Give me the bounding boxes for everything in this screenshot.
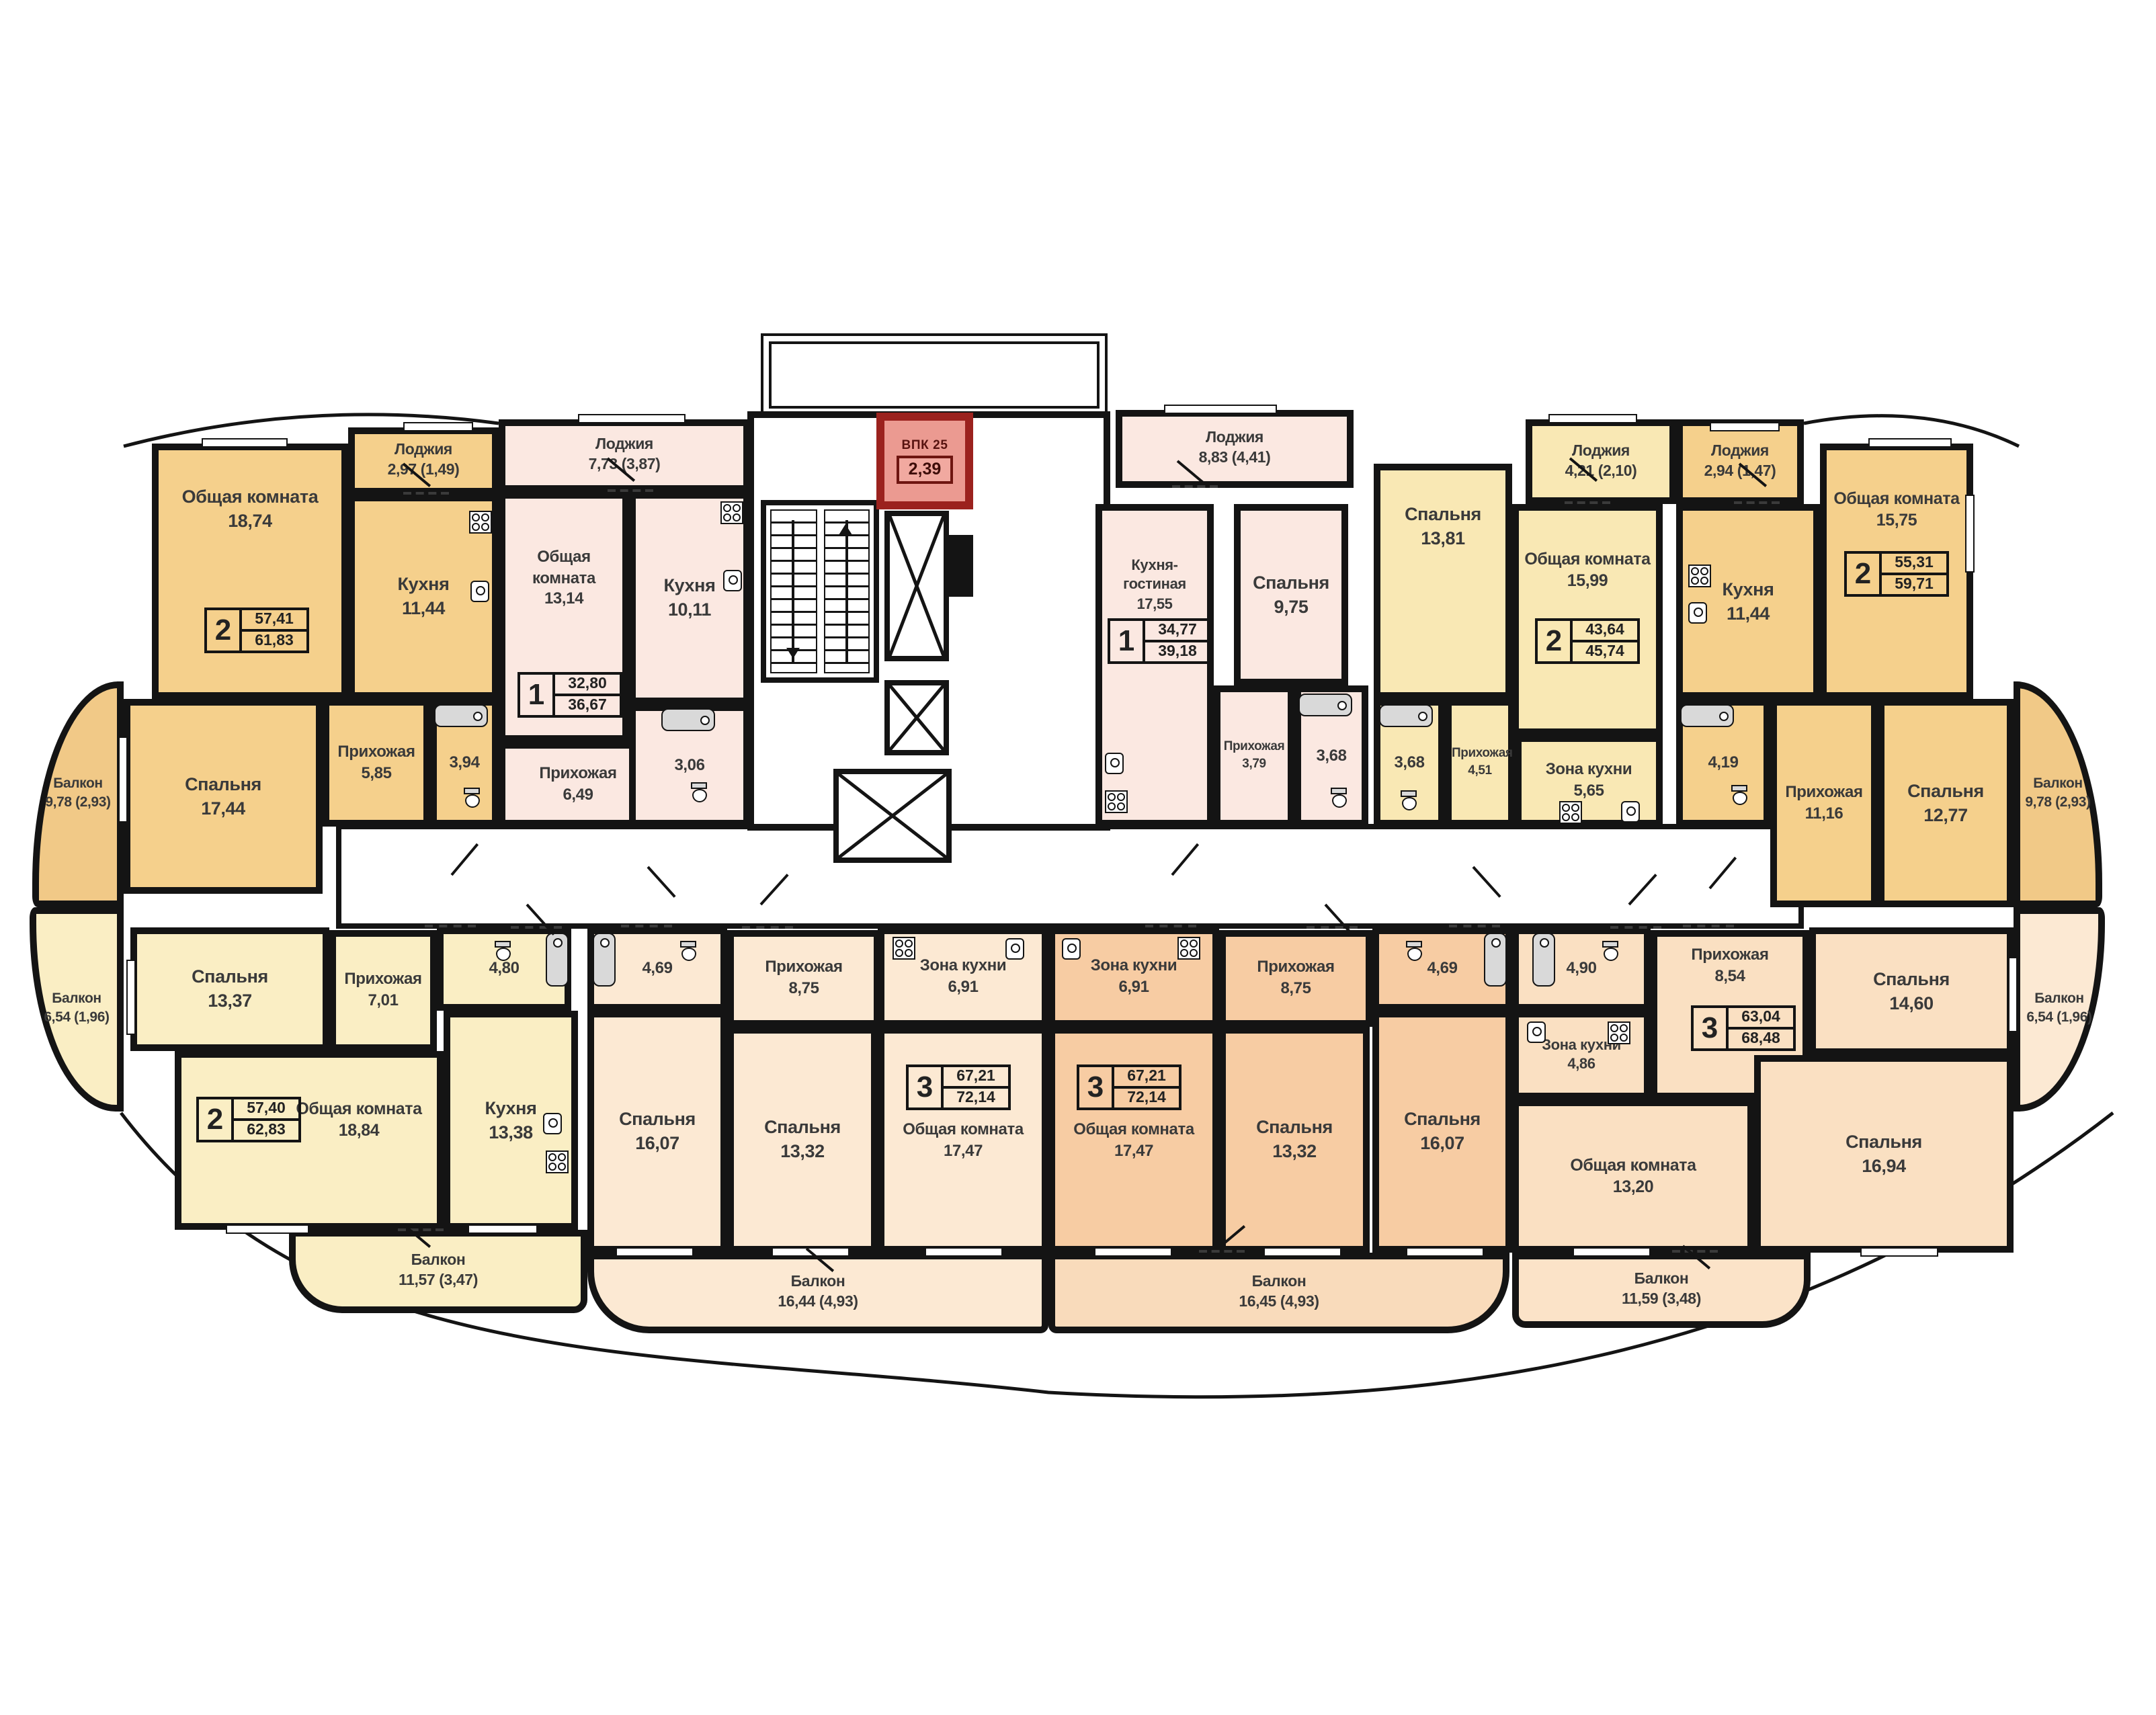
room-label: Спальня (1816, 968, 2007, 991)
room-text: Спальня9,75 (1241, 571, 1341, 618)
room-label: Общая комната (1827, 488, 1966, 510)
stove-icon (893, 937, 915, 960)
room-area-value: 2,97 (1,49) (355, 461, 492, 481)
room-text: 3,68 (1380, 752, 1438, 773)
apartment-total-area: 62,83 (234, 1121, 298, 1140)
room-label: Прихожая (1226, 958, 1366, 978)
room-area-value: 15,99 (1519, 571, 1656, 593)
room-text: Лоджия8,83 (4,41) (1122, 429, 1347, 469)
room-area-value: 13,81 (1380, 526, 1505, 550)
room-text: Общая комната15,99 (1519, 548, 1656, 592)
room-label: Спальня (1241, 571, 1341, 595)
room-apt-g-bedroom-1: Спальня16,07 (587, 1011, 727, 1253)
room-text: Балкон6,54 (1,96) (2020, 991, 2098, 1028)
door-threshold (1610, 926, 1661, 929)
wall-stub (949, 535, 973, 597)
apartment-living-area: 57,40 (234, 1099, 298, 1121)
room-label: Балкон (2020, 991, 2098, 1009)
room-label: Лоджия (355, 441, 492, 461)
room-label: Спальня (1761, 1130, 2007, 1154)
room-apt-i-common-room: Общая комната13,20 (1512, 1099, 1754, 1253)
apartment-living-area: 57,41 (242, 610, 306, 632)
apartment-total-area: 72,14 (944, 1089, 1008, 1107)
toilet-bowl (1331, 794, 1346, 808)
bathtub-icon (1379, 704, 1433, 727)
apartment-rooms-count: 3 (909, 1067, 944, 1107)
room-text: Спальня12,77 (1884, 780, 2007, 827)
room-label: Балкон (36, 991, 117, 1009)
room-area-value: 16,07 (1379, 1132, 1505, 1155)
apartment-rooms-count: 2 (1847, 554, 1882, 594)
room-apt-e-bedroom: Спальня12,77 (1878, 699, 2014, 907)
room-label: Спальня (137, 966, 323, 989)
bathtub-icon (1532, 933, 1555, 987)
vpk-title: ВПК 25 (902, 438, 948, 453)
bathtub-icon (546, 933, 569, 987)
apartment-badge-c: 134,7739,18 (1108, 618, 1212, 664)
room-apt-e-kitchen: Кухня11,44 (1676, 504, 1820, 699)
apartment-rooms-count: 2 (207, 610, 242, 651)
room-area-value: 3,79 (1220, 756, 1288, 773)
room-text: Спальня16,94 (1761, 1130, 2007, 1177)
toilet-icon (464, 788, 480, 808)
room-area-value: 18,84 (281, 1120, 437, 1142)
apartment-areas: 63,0468,48 (1729, 1008, 1793, 1048)
room-label: Спальня (1226, 1116, 1363, 1140)
apartment-total-area: 36,67 (555, 696, 620, 715)
room-apt-h-common-room: Общая комната17,47 (1048, 1027, 1219, 1253)
apartment-badge-g: 367,2172,14 (906, 1064, 1011, 1110)
room-text: Спальня13,37 (137, 966, 323, 1013)
door-threshold (398, 1228, 444, 1231)
bathtub-icon (1298, 694, 1352, 716)
room-text: Балкон11,59 (3,48) (1519, 1270, 1804, 1310)
sink-icon (1621, 801, 1640, 823)
apartment-badge-a: 257,4161,83 (204, 608, 309, 653)
room-text: Общая комната13,14 (505, 547, 622, 610)
room-area-value: 4,19 (1683, 752, 1764, 773)
door-threshold (1565, 501, 1610, 504)
window (226, 1224, 309, 1234)
room-label: Лоджия (1122, 429, 1347, 449)
apartment-rooms-count: 2 (1538, 621, 1573, 661)
apartment-areas: 34,7739,18 (1145, 621, 1210, 661)
room-apt-f-hall: Прихожая7,01 (329, 930, 437, 1051)
room-apt-f-balcony: Балкон11,57 (3,47) (289, 1230, 587, 1313)
toilet-bowl (681, 948, 696, 961)
stove-icon (1105, 790, 1128, 813)
room-text: Кухня-гостиная17,55 (1102, 556, 1207, 614)
room-area-value: 3,68 (1301, 745, 1362, 766)
apartment-rooms-count: 3 (1694, 1008, 1729, 1048)
room-area-value: 4,86 (1519, 1055, 1644, 1075)
room-area-value: 17,44 (130, 796, 316, 820)
sink-icon (1688, 602, 1707, 624)
stairs (761, 500, 879, 683)
stove-icon (720, 501, 743, 524)
door-threshold (1199, 1250, 1245, 1253)
room-apt-d-loggia: Лоджия4,21 (2,10) (1526, 419, 1676, 504)
window (1860, 1247, 1938, 1257)
sink-icon (1005, 938, 1024, 960)
apartment-total-area: 45,74 (1573, 642, 1637, 661)
room-text: Зона кухни5,65 (1522, 760, 1656, 802)
toilet-tank (691, 782, 707, 789)
room-text: Лоджия4,21 (2,10) (1532, 442, 1669, 482)
room-area-value: 16,44 (4,93) (594, 1293, 1042, 1313)
window (1406, 1247, 1484, 1257)
apartment-badge-h: 367,2172,14 (1077, 1064, 1181, 1110)
toilet-tank (1602, 941, 1618, 948)
bathtub-icon (1680, 704, 1734, 727)
room-text: Спальня17,44 (130, 773, 316, 820)
window (578, 414, 686, 423)
room-apt-c-kitchen-living: Кухня-гостиная17,55 (1095, 504, 1214, 827)
room-area-value: 3,68 (1380, 752, 1438, 773)
room-text: Прихожая8,75 (734, 958, 874, 999)
toilet-tank (1406, 941, 1422, 948)
room-area-value: 13,14 (505, 589, 622, 610)
arrow-up-icon (845, 520, 848, 663)
room-text: Общая комната17,47 (1055, 1120, 1212, 1161)
room-label: Прихожая (1452, 746, 1508, 763)
toilet-tank (680, 941, 696, 948)
stove-icon (469, 511, 492, 534)
room-text: 3,68 (1301, 745, 1362, 766)
toilet-tank (1331, 788, 1347, 794)
room-label: Общая комната (505, 547, 622, 589)
window (1573, 1247, 1651, 1257)
toilet-bowl (495, 948, 510, 961)
door-threshold (403, 492, 449, 495)
toilet-icon (1731, 785, 1747, 805)
room-apt-f-bedroom: Спальня13,37 (130, 927, 329, 1051)
room-area-value: 9,75 (1241, 595, 1341, 618)
stove-icon (1177, 937, 1200, 960)
room-apt-d-hall: Прихожая4,51 (1445, 699, 1515, 827)
apartment-total-area: 39,18 (1145, 642, 1210, 661)
toilet-tank (1401, 790, 1417, 797)
room-apt-i-balcony: Балкон11,59 (3,48) (1512, 1253, 1811, 1328)
room-apt-c-loggia: Лоджия8,83 (4,41) (1116, 410, 1354, 488)
room-label: Прихожая (1220, 739, 1288, 756)
room-apt-d-kitchen-zone: Зона кухни5,65 (1515, 735, 1663, 827)
room-apt-i-bedroom-2: Спальня16,94 (1754, 1055, 2014, 1253)
room-area-value: 8,75 (734, 978, 874, 999)
room-area-value: 3,06 (636, 755, 743, 776)
room-apt-i-bedroom-1: Спальня14,60 (1809, 927, 2014, 1055)
room-text: Зона кухни6,91 (884, 956, 1042, 998)
toilet-bowl (692, 789, 706, 802)
room-apt-a-common-room: Общая комната18,74 (152, 444, 348, 699)
room-area-value: 15,75 (1827, 510, 1966, 532)
room-area-value: 13,20 (1519, 1176, 1747, 1198)
door-threshold (742, 926, 793, 929)
room-text: Спальня16,07 (594, 1108, 720, 1155)
room-text: Балкон9,78 (2,93) (39, 776, 117, 813)
apartment-rooms-count: 3 (1079, 1067, 1114, 1107)
elevator-1 (884, 511, 949, 661)
toilet-icon (680, 941, 696, 961)
window (1548, 414, 1637, 423)
apartment-areas: 57,4062,83 (234, 1099, 298, 1140)
apartment-badge-e: 255,3159,71 (1844, 551, 1949, 597)
stair-flight-up (823, 509, 870, 673)
apartment-living-area: 67,21 (944, 1067, 1008, 1089)
room-text: 4,19 (1683, 752, 1764, 773)
apartment-living-area: 43,64 (1573, 621, 1637, 642)
window (1263, 1247, 1341, 1257)
room-label: Балкон (39, 776, 117, 794)
door-threshold (1683, 925, 1734, 927)
apartment-rooms-count: 1 (520, 675, 555, 715)
window (925, 1247, 1003, 1257)
apartment-living-area: 34,77 (1145, 621, 1210, 642)
room-area-value: 6,54 (1,96) (36, 1009, 117, 1028)
room-text: Балкон6,54 (1,96) (36, 991, 117, 1028)
window (1965, 495, 1975, 573)
room-area-value: 13,32 (734, 1140, 871, 1163)
room-label: Прихожая (1777, 782, 1871, 803)
room-text: Прихожая5,85 (329, 742, 423, 784)
room-apt-a-hall: Прихожая5,85 (323, 699, 430, 827)
room-apt-g-hall: Прихожая8,75 (727, 930, 880, 1027)
room-area-value: 13,37 (137, 989, 323, 1013)
bathtub-icon (593, 933, 616, 987)
room-text: Прихожая11,16 (1777, 782, 1871, 824)
room-area-value: 6,54 (1,96) (2020, 1009, 2098, 1028)
window (468, 1224, 538, 1234)
stove-icon (546, 1151, 569, 1173)
room-label: Прихожая (734, 958, 874, 978)
room-text: Общая комната15,75 (1827, 488, 1966, 532)
room-label: Общая комната (884, 1120, 1042, 1140)
room-area-value: 3,94 (437, 752, 492, 773)
sink-icon (470, 581, 489, 602)
room-area-value: 17,55 (1102, 595, 1207, 614)
door-threshold (1672, 1250, 1718, 1253)
room-text: Общая комната17,47 (884, 1120, 1042, 1161)
room-apt-h-balcony: Балкон16,45 (4,93) (1048, 1253, 1509, 1333)
room-text: Общая комната18,74 (159, 485, 341, 532)
apartment-rooms-count: 1 (1110, 621, 1145, 661)
bathtub-icon (1484, 933, 1507, 987)
toilet-icon (1331, 788, 1347, 808)
room-label: Спальня (1884, 780, 2007, 803)
room-apt-c-hall: Прихожая3,79 (1214, 685, 1294, 827)
room-label: Балкон (1055, 1273, 1503, 1293)
room-apt-a-bedroom: Спальня17,44 (124, 699, 323, 894)
sink-icon (543, 1113, 562, 1134)
plan-canvas: Балкон9,78 (2,93)Балкон6,54 (1,96)Балкон… (0, 0, 2156, 1715)
stove-icon (1559, 801, 1582, 824)
room-text: Прихожая8,54 (1657, 945, 1802, 987)
room-label: Прихожая (1657, 945, 1802, 966)
room-text: Балкон16,44 (4,93) (594, 1273, 1042, 1313)
room-area-value: 13,32 (1226, 1140, 1363, 1163)
room-label: Лоджия (505, 435, 743, 456)
room-text: 3,94 (437, 752, 492, 773)
toilet-tank (495, 941, 511, 948)
window (2008, 957, 2018, 1032)
room-area-value: 6,91 (884, 977, 1042, 998)
door-threshold (621, 925, 672, 927)
room-text: Зона кухни6,91 (1055, 956, 1212, 998)
vpk-area-value: 2,39 (897, 456, 954, 484)
window (126, 960, 136, 1035)
sink-icon (723, 570, 742, 591)
apartment-areas: 55,3159,71 (1882, 554, 1946, 594)
room-area-value: 5,65 (1522, 781, 1656, 802)
room-area-value: 10,11 (636, 598, 743, 622)
room-area-value: 11,59 (3,48) (1519, 1290, 1804, 1310)
room-text: Прихожая8,75 (1226, 958, 1366, 999)
stove-icon (1688, 564, 1711, 587)
room-label: Зона кухни (1522, 760, 1656, 781)
room-apt-a-loggia: Лоджия2,97 (1,49) (348, 427, 499, 495)
room-text: Спальня13,81 (1380, 503, 1505, 550)
elevator-2 (884, 680, 949, 755)
room-apt-c-bedroom: Спальня9,75 (1234, 504, 1348, 685)
apartment-total-area: 72,14 (1114, 1089, 1179, 1107)
room-label: Прихожая (336, 970, 430, 991)
room-apt-g-bedroom-2: Спальня13,32 (727, 1027, 878, 1253)
room-label: Спальня (594, 1108, 720, 1132)
room-apt-e-loggia: Лоджия2,94 (1,47) (1676, 419, 1804, 504)
corridor (336, 824, 1804, 929)
room-area-value: 8,83 (4,41) (1122, 449, 1347, 469)
room-label: Лоджия (1532, 442, 1669, 462)
room-area-value: 6,91 (1055, 977, 1212, 998)
room-label: Спальня (1379, 1108, 1505, 1132)
room-text: Лоджия7,73 (3,87) (505, 435, 743, 476)
room-label: Балкон (1519, 1270, 1804, 1290)
toilet-bowl (1401, 797, 1416, 810)
room-apt-h-bedroom-1: Спальня16,07 (1372, 1011, 1512, 1253)
door-threshold (1734, 501, 1780, 504)
window (1868, 438, 1952, 448)
apartment-badge-i: 363,0468,48 (1691, 1005, 1796, 1051)
room-text: Лоджия2,94 (1,47) (1683, 442, 1797, 482)
vpk-panel: ВПК 25 2,39 (884, 421, 965, 501)
toilet-icon (1602, 941, 1618, 961)
apartment-areas: 57,4161,83 (242, 610, 306, 651)
apartment-areas: 67,2172,14 (944, 1067, 1008, 1107)
toilet-bowl (464, 794, 479, 808)
door-threshold (1172, 485, 1218, 488)
room-area-value: 16,94 (1761, 1154, 2007, 1177)
door-threshold (1307, 926, 1358, 929)
room-label: Общая комната (1519, 548, 1656, 571)
room-area-value: 17,47 (1055, 1140, 1212, 1161)
window (403, 422, 473, 431)
room-area-value: 7,01 (336, 991, 430, 1011)
room-text: Балкон9,78 (2,93) (2020, 776, 2096, 813)
window (1094, 1247, 1172, 1257)
apartment-areas: 67,2172,14 (1114, 1067, 1179, 1107)
toilet-tank (464, 788, 480, 794)
room-label: Балкон (296, 1251, 581, 1271)
room-label: Общая комната (1055, 1120, 1212, 1140)
room-label: Общая комната (159, 485, 341, 509)
sink-icon (1105, 753, 1124, 774)
room-apt-g-balcony: Балкон16,44 (4,93) (587, 1253, 1048, 1333)
room-label: Балкон (2020, 776, 2096, 794)
apartment-total-area: 68,48 (1729, 1030, 1793, 1048)
apartment-total-area: 61,83 (242, 632, 306, 651)
room-text: Спальня16,07 (1379, 1108, 1505, 1155)
apartment-living-area: 55,31 (1882, 554, 1946, 575)
room-label: Кухня-гостиная (1102, 556, 1207, 595)
room-area-value: 11,16 (1777, 803, 1871, 824)
door-threshold (608, 489, 653, 492)
elevator-3 (833, 769, 952, 863)
vpk-highlighted-unit: ВПК 25 2,39 (876, 413, 973, 509)
room-label: Общая комната (1519, 1155, 1747, 1177)
room-text: Спальня14,60 (1816, 968, 2007, 1015)
room-area-value: 11,57 (3,47) (296, 1271, 581, 1292)
door-threshold (1449, 925, 1500, 927)
arrow-down-icon (792, 520, 795, 663)
room-text: Спальня13,32 (734, 1116, 871, 1163)
apartment-living-area: 32,80 (555, 675, 620, 696)
sink-icon (1527, 1021, 1546, 1043)
room-area-value: 16,45 (4,93) (1055, 1293, 1503, 1313)
room-text: Балкон11,57 (3,47) (296, 1251, 581, 1292)
toilet-icon (1406, 941, 1422, 961)
apartment-badge-b: 132,8036,67 (517, 672, 622, 718)
room-apt-h-hall: Прихожая8,75 (1219, 930, 1372, 1027)
room-area-value: 4,21 (2,10) (1532, 462, 1669, 482)
room-text: Прихожая3,79 (1220, 739, 1288, 772)
room-label: Общая комната (281, 1098, 437, 1120)
room-label: Спальня (130, 773, 316, 796)
room-apt-d-bedroom: Спальня13,81 (1374, 464, 1512, 699)
room-label: Лоджия (1683, 442, 1797, 462)
room-area-value: 5,85 (329, 763, 423, 784)
bathtub-icon (434, 704, 488, 727)
stair-flight-down (770, 509, 817, 673)
window (1710, 422, 1780, 431)
toilet-icon (691, 782, 707, 802)
room-area-value: 8,75 (1226, 978, 1366, 999)
toilet-icon (495, 941, 511, 961)
room-label: Спальня (1380, 503, 1505, 526)
apartment-total-area: 59,71 (1882, 575, 1946, 594)
room-apt-b-loggia: Лоджия7,73 (3,87) (499, 419, 750, 492)
window (202, 438, 288, 448)
room-text: Прихожая4,51 (1452, 746, 1508, 779)
apartment-badge-d: 243,6445,74 (1535, 618, 1640, 664)
toilet-bowl (1603, 948, 1618, 961)
room-text: Спальня13,32 (1226, 1116, 1363, 1163)
door-threshold (425, 925, 476, 927)
window (616, 1247, 694, 1257)
floor-plan-page: Балкон9,78 (2,93)Балкон6,54 (1,96)Балкон… (0, 0, 2156, 857)
window (1164, 405, 1277, 414)
apartment-living-area: 63,04 (1729, 1008, 1793, 1030)
door-threshold (511, 926, 562, 929)
door-threshold (1145, 925, 1196, 927)
room-label: Прихожая (329, 742, 423, 763)
room-apt-g-common-room: Общая комната17,47 (878, 1027, 1048, 1253)
stove-icon (1608, 1021, 1630, 1044)
room-area-value: 4,51 (1452, 763, 1508, 780)
toilet-tank (1731, 785, 1747, 792)
machine-room (761, 333, 1108, 417)
room-area-value: 8,54 (1657, 966, 1802, 987)
room-text: Прихожая7,01 (336, 970, 430, 1011)
